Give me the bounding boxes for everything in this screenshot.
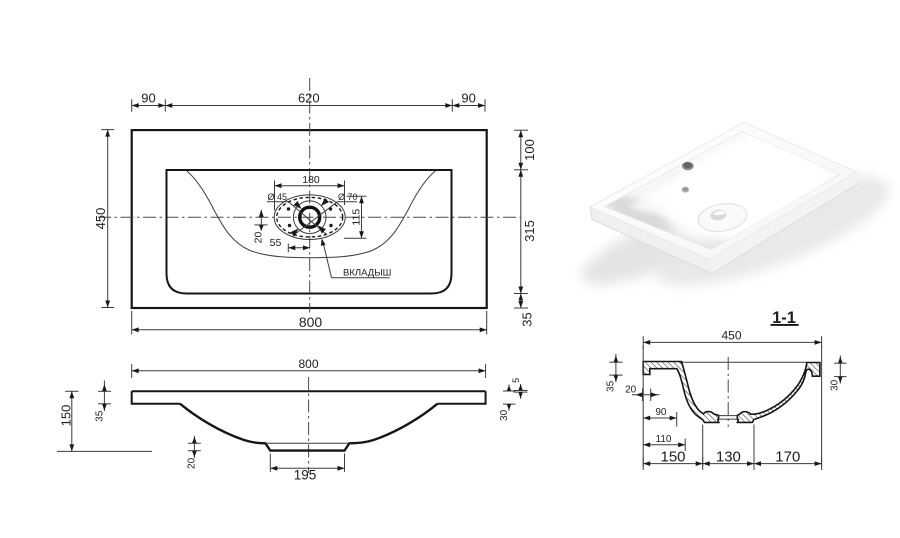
svg-text:Ø 70: Ø 70 [338, 192, 358, 202]
svg-text:180: 180 [302, 174, 320, 186]
svg-text:20: 20 [625, 384, 637, 395]
svg-text:20: 20 [253, 232, 265, 244]
svg-text:110: 110 [656, 434, 672, 445]
svg-text:90: 90 [655, 407, 667, 418]
svg-text:35: 35 [520, 312, 535, 326]
svg-text:100: 100 [522, 139, 537, 161]
svg-text:315: 315 [522, 220, 537, 242]
svg-text:800: 800 [298, 357, 318, 371]
svg-text:195: 195 [294, 468, 317, 483]
svg-text:35: 35 [606, 380, 617, 392]
svg-text:55: 55 [270, 237, 282, 249]
svg-text:150: 150 [660, 448, 685, 465]
svg-text:30: 30 [830, 379, 841, 391]
svg-text:115: 115 [350, 209, 362, 226]
svg-text:5: 5 [511, 378, 521, 383]
svg-text:800: 800 [299, 314, 323, 330]
svg-text:90: 90 [141, 91, 155, 106]
svg-text:Ø 45: Ø 45 [268, 192, 288, 202]
svg-text:90: 90 [461, 91, 475, 106]
svg-text:130: 130 [716, 448, 741, 465]
svg-text:170: 170 [775, 448, 800, 465]
svg-text:450: 450 [93, 208, 108, 230]
svg-text:ВКЛАДЫШ: ВКЛАДЫШ [343, 268, 391, 279]
svg-text:30: 30 [499, 409, 510, 421]
svg-text:620: 620 [298, 91, 320, 106]
svg-text:150: 150 [59, 405, 74, 427]
svg-text:20: 20 [187, 457, 198, 469]
svg-text:35: 35 [94, 410, 105, 422]
svg-text:450: 450 [721, 329, 741, 343]
